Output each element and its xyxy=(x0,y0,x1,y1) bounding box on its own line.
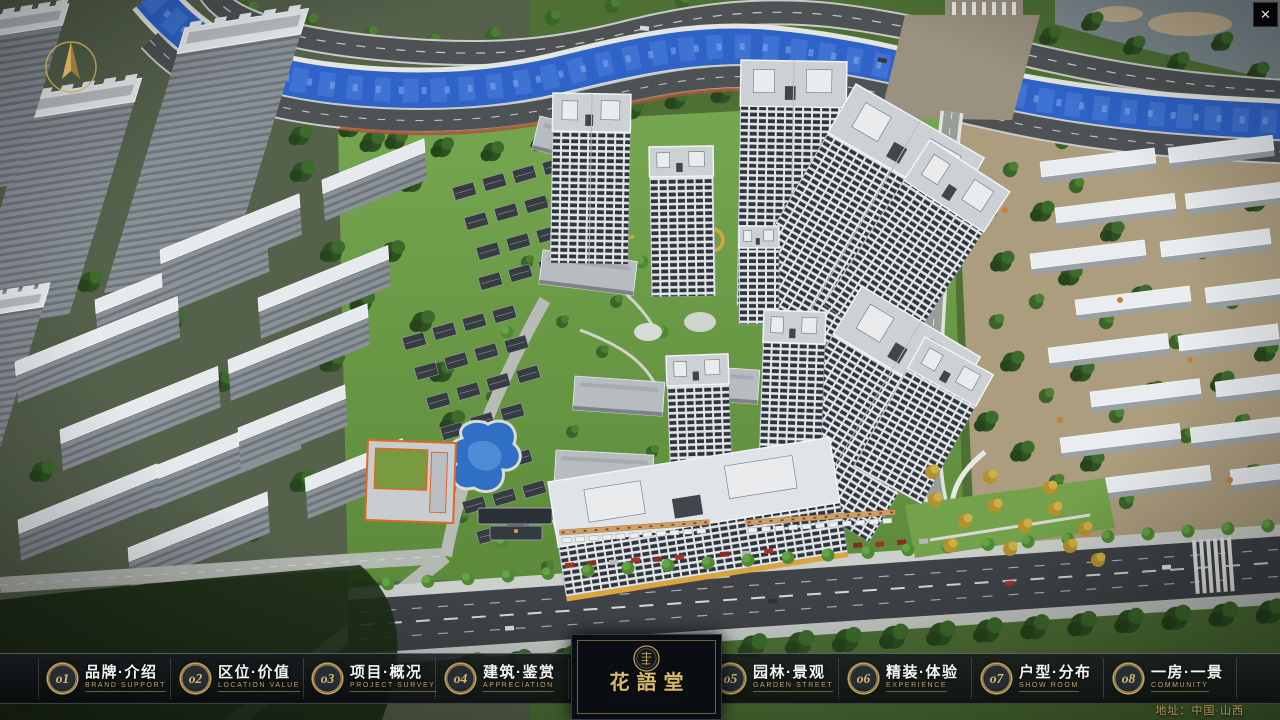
nav-label-en: EXPERIENCE xyxy=(886,682,947,692)
nav-label-zh: 园林·景观 xyxy=(753,665,826,681)
nav-label-en: LOCATION VALUE xyxy=(218,682,300,692)
nav-item-interior[interactable]: o6 精装·体验 EXPERIENCE xyxy=(849,654,959,703)
nav-item-brand[interactable]: o1 品牌·介绍 BRAND SUPPORT xyxy=(48,654,166,703)
close-button[interactable]: ✕ xyxy=(1253,2,1278,27)
separator xyxy=(170,658,171,699)
logo-panel[interactable]: 花語堂 · · · · · · · · xyxy=(571,634,722,720)
separator xyxy=(303,658,304,699)
masterplan-render xyxy=(0,0,1280,720)
separator xyxy=(971,658,972,699)
nav-number-badge: o3 xyxy=(313,664,342,693)
separator xyxy=(838,658,839,699)
nav-item-architecture[interactable]: o4 建筑·鉴赏 APPRECIATION xyxy=(446,654,556,703)
nav-label-en: COMMUNITY xyxy=(1151,682,1209,692)
nav-item-project[interactable]: o3 项目·概况 PROJECT SURVEY xyxy=(313,654,436,703)
nav-number-badge: o8 xyxy=(1114,664,1143,693)
app-window: ✕ o1 品牌·介绍 BRAND SUPPORT o2 区位·价值 LOCATI… xyxy=(0,0,1280,720)
nav-item-view[interactable]: o8 一房·一景 COMMUNITY xyxy=(1114,654,1224,703)
nav-number-badge: o7 xyxy=(982,664,1011,693)
nav-label-zh: 户型·分布 xyxy=(1019,665,1092,681)
nav-item-location[interactable]: o2 区位·价值 LOCATION VALUE xyxy=(181,654,300,703)
nav-number-badge: o2 xyxy=(181,664,210,693)
nav-label-zh: 精装·体验 xyxy=(886,665,959,681)
brand-seal-icon xyxy=(632,644,661,673)
nav-number-badge: o1 xyxy=(48,664,77,693)
separator xyxy=(568,658,569,699)
nav-label-en: PROJECT SURVEY xyxy=(350,682,436,692)
separator xyxy=(1103,658,1104,699)
nav-label-zh: 区位·价值 xyxy=(218,665,291,681)
logo-frame: 花語堂 · · · · · · · · xyxy=(577,640,716,714)
separator xyxy=(1236,658,1237,699)
nav-label-en: GARDEN STREET xyxy=(753,682,833,692)
nav-item-garden[interactable]: o5 园林·景观 GARDEN STREET xyxy=(716,654,833,703)
brand-subtitle: · · · · · · · · xyxy=(610,695,683,701)
nav-label-en: BRAND SUPPORT xyxy=(85,682,166,692)
nav-item-floorplan[interactable]: o7 户型·分布 SHOW ROOM xyxy=(982,654,1092,703)
nav-number-badge: o6 xyxy=(849,664,878,693)
nav-label-zh: 一房·一景 xyxy=(1151,665,1224,681)
separator xyxy=(38,658,39,699)
nav-label-en: APPRECIATION xyxy=(483,682,554,692)
brand-name: 花語堂 xyxy=(610,673,691,694)
nav-label-zh: 建筑·鉴赏 xyxy=(483,665,556,681)
nav-label-zh: 品牌·介绍 xyxy=(85,665,158,681)
nav-number-badge: o4 xyxy=(446,664,475,693)
address-text: 地址：中国·山西 xyxy=(1155,702,1244,718)
nav-label-en: SHOW ROOM xyxy=(1019,682,1079,692)
nav-label-zh: 项目·概况 xyxy=(350,665,423,681)
